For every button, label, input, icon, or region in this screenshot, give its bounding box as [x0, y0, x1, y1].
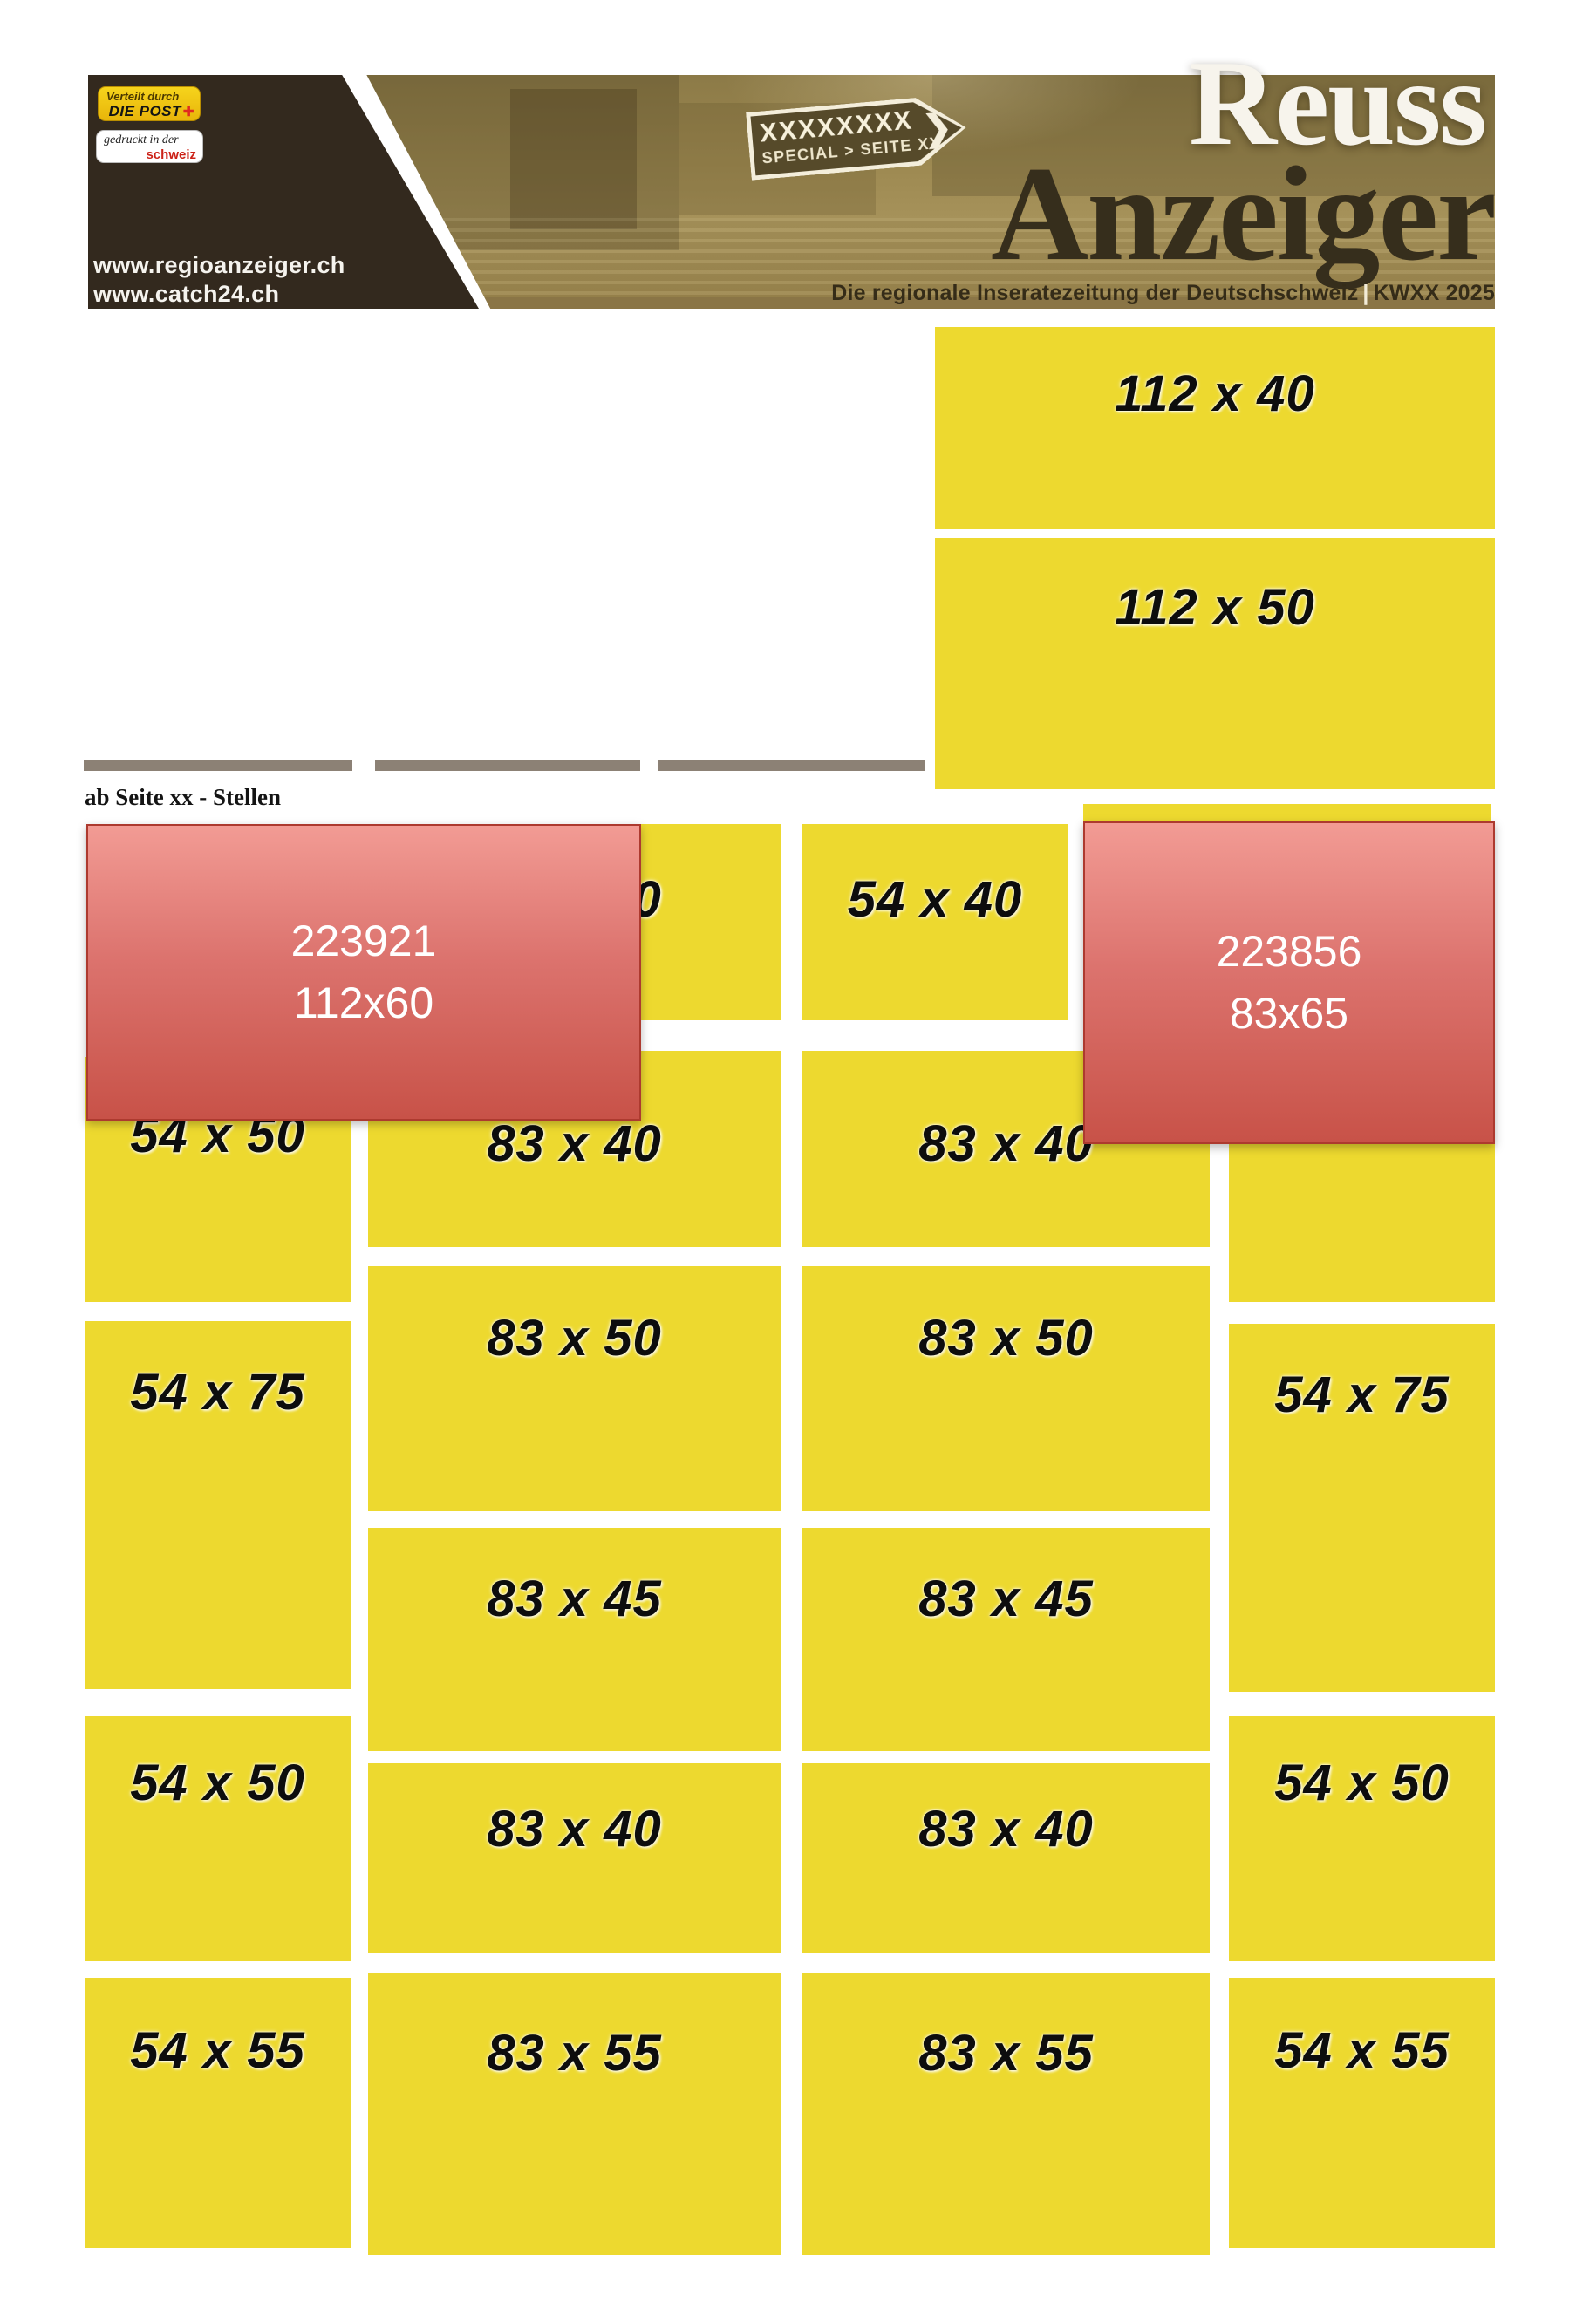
- ad-slot-size-label: 83 x 55: [802, 2022, 1210, 2085]
- ad-slot-54x75[interactable]: 54 x 75: [85, 1321, 351, 1689]
- print-badge-schweiz: schweiz: [97, 147, 202, 162]
- ad-slot-54x50[interactable]: 54 x 50: [1229, 1716, 1495, 1961]
- post-badge-label: Verteilt durch: [99, 87, 200, 103]
- tagline-separator: |: [1358, 281, 1373, 305]
- booked-ad-overlay-223856[interactable]: 22385683x65: [1083, 821, 1495, 1144]
- ad-slot-54x55[interactable]: 54 x 55: [1229, 1978, 1495, 2248]
- ad-slot-112x40[interactable]: 112 x 40: [935, 327, 1495, 529]
- section-separator-bar: [84, 760, 352, 771]
- ad-slot-size-label: 54 x 55: [85, 2020, 351, 2082]
- url-catch24: www.catch24.ch: [93, 280, 345, 309]
- ad-slot-54x55[interactable]: 54 x 55: [85, 1978, 351, 2248]
- ad-slot-112x50[interactable]: 112 x 50: [935, 538, 1495, 789]
- ad-slot-size-label: 112 x 40: [935, 363, 1495, 426]
- ad-slot-83x40[interactable]: 83 x 40: [368, 1763, 781, 1953]
- ad-slot-83x55[interactable]: 83 x 55: [368, 1973, 781, 2255]
- ad-slot-size-label: 83 x 45: [802, 1568, 1210, 1631]
- swiss-post-cross-icon: ✚: [183, 105, 194, 119]
- url-regioanzeiger: www.regioanzeiger.ch: [93, 251, 345, 280]
- section-label: ab Seite xx - Stellen: [85, 784, 281, 811]
- ad-slot-54x40[interactable]: 54 x 40: [802, 824, 1068, 1020]
- ad-slot-83x50[interactable]: 83 x 50: [802, 1266, 1210, 1511]
- ad-layout-page: Verteilt durch DIE POST✚ gedruckt in der…: [0, 0, 1583, 2324]
- ad-slot-83x40[interactable]: 83 x 40: [802, 1763, 1210, 1953]
- booking-size: 112x60: [294, 972, 433, 1034]
- booked-ad-overlay-223921[interactable]: 223921112x60: [86, 824, 641, 1121]
- logo-anzeiger: Anzeiger: [991, 147, 1495, 282]
- ad-slot-size-label: 54 x 50: [1229, 1752, 1495, 1815]
- ad-slot-size-label: 83 x 45: [368, 1568, 781, 1631]
- die-post-logo: DIE POST✚: [99, 103, 200, 120]
- masthead-tagline: Die regionale Inseratezeitung der Deutsc…: [831, 281, 1495, 306]
- booking-id: 223921: [291, 910, 437, 972]
- ad-slot-83x45[interactable]: 83 x 45: [802, 1528, 1210, 1751]
- tagline-edition: KWXX 2025: [1374, 281, 1495, 305]
- section-separator-bar: [658, 760, 925, 771]
- ad-slot-size-label: 83 x 55: [368, 2022, 781, 2085]
- ad-slot-83x50[interactable]: 83 x 50: [368, 1266, 781, 1511]
- ad-slot-size-label: 54 x 55: [1229, 2020, 1495, 2082]
- ad-slot-size-label: 54 x 40: [802, 869, 1068, 931]
- ad-slot-size-label: 54 x 75: [85, 1361, 351, 1424]
- printed-in-switzerland-badge: gedruckt in der schweiz: [96, 130, 203, 163]
- ad-slot-size-label: 83 x 40: [802, 1798, 1210, 1861]
- ad-slot-83x45[interactable]: 83 x 45: [368, 1528, 781, 1751]
- print-badge-label: gedruckt in der: [97, 131, 202, 147]
- masthead-urls: www.regioanzeiger.ch www.catch24.ch: [93, 251, 345, 309]
- ad-slot-83x55[interactable]: 83 x 55: [802, 1973, 1210, 2255]
- booking-id: 223856: [1217, 921, 1362, 983]
- photo-tower-shape: [510, 89, 637, 229]
- ad-slot-size-label: 83 x 40: [368, 1798, 781, 1861]
- ad-slot-size-label: 54 x 75: [1229, 1364, 1495, 1427]
- booking-size: 83x65: [1230, 983, 1348, 1045]
- ad-slot-54x75[interactable]: 54 x 75: [1229, 1324, 1495, 1692]
- ad-slot-size-label: 112 x 50: [935, 576, 1495, 639]
- ad-slot-size-label: 83 x 50: [368, 1307, 781, 1370]
- ad-slot-size-label: 54 x 50: [85, 1752, 351, 1815]
- ad-slot-54x50[interactable]: 54 x 50: [85, 1716, 351, 1961]
- ad-slot-size-label: 83 x 40: [368, 1113, 781, 1176]
- post-distribution-badge: Verteilt durch DIE POST✚: [98, 86, 201, 121]
- ad-slot-size-label: 83 x 50: [802, 1307, 1210, 1370]
- tagline-text: Die regionale Inseratezeitung der Deutsc…: [831, 281, 1358, 305]
- section-separator-bar: [375, 760, 640, 771]
